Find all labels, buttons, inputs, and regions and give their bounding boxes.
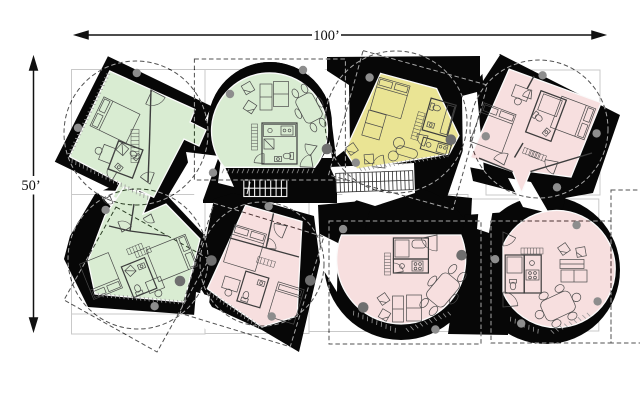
svg-text:50’: 50’: [21, 178, 40, 194]
svg-text:100’: 100’: [313, 28, 340, 44]
